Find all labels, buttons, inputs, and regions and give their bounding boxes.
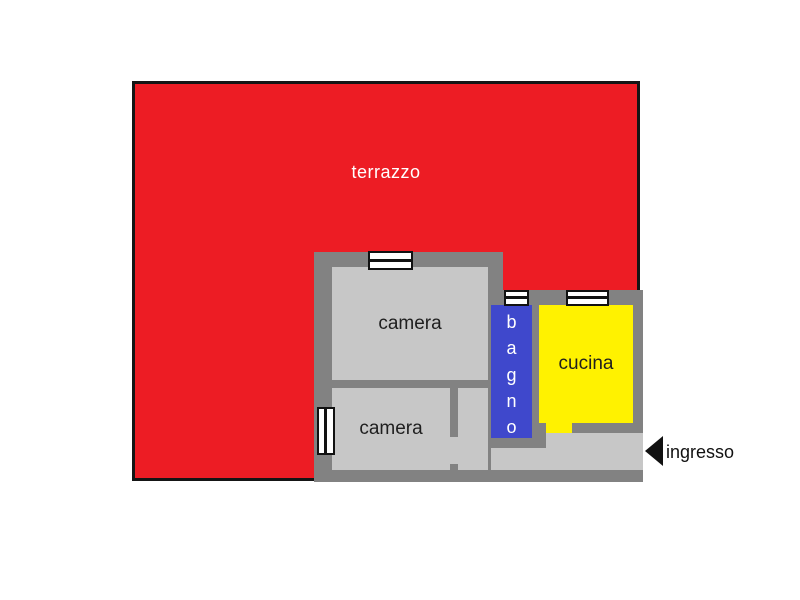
window-icon bbox=[368, 251, 413, 270]
room-camera-1-label: camera bbox=[332, 267, 488, 380]
door-opening-camera-2 bbox=[450, 437, 458, 464]
floor-plan: terrazzo camera camera b a g n o cucina bbox=[0, 0, 800, 600]
entrance-arrow-icon bbox=[645, 436, 663, 466]
entrance-label: ingresso bbox=[666, 442, 734, 463]
door-opening-cucina bbox=[546, 423, 572, 433]
corridor-floor bbox=[546, 433, 633, 470]
room-bagno-letter: n bbox=[506, 392, 516, 410]
room-camera-1: camera bbox=[332, 267, 488, 380]
corridor-floor bbox=[458, 388, 488, 470]
window-icon bbox=[504, 290, 529, 306]
terrace-label: terrazzo bbox=[135, 162, 637, 183]
room-bagno-letter: a bbox=[506, 339, 516, 357]
room-bagno-letter: b bbox=[506, 313, 516, 331]
window-mullion bbox=[370, 259, 411, 262]
window-mullion bbox=[568, 296, 607, 299]
window-mullion bbox=[324, 409, 327, 453]
room-bagno: b a g n o bbox=[491, 305, 532, 438]
room-cucina: cucina bbox=[539, 305, 633, 423]
window-icon bbox=[317, 407, 335, 455]
room-bagno-letter: o bbox=[506, 418, 516, 436]
window-icon bbox=[566, 290, 609, 306]
room-cucina-label: cucina bbox=[539, 305, 633, 423]
window-mullion bbox=[506, 296, 527, 299]
room-camera-2: camera bbox=[332, 388, 450, 470]
room-camera-2-label: camera bbox=[332, 388, 450, 470]
door-opening-entrance bbox=[633, 433, 643, 470]
room-bagno-letter: g bbox=[506, 366, 516, 384]
